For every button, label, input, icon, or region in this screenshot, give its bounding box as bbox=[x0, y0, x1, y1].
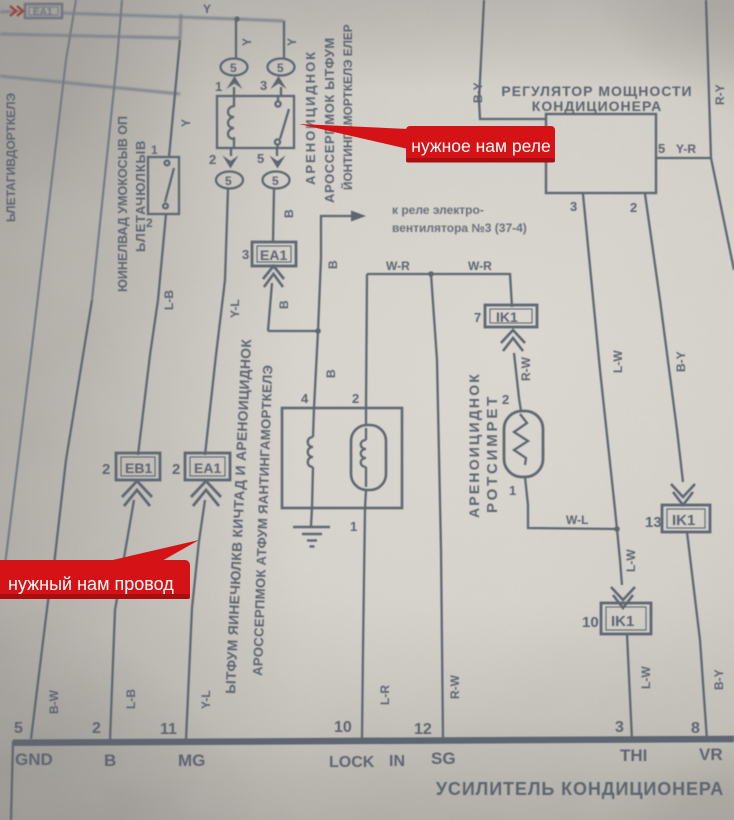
svg-text:5: 5 bbox=[230, 61, 237, 75]
svg-text:B: B bbox=[282, 209, 296, 218]
svg-text:8: 8 bbox=[691, 720, 700, 737]
svg-text:B-W: B-W bbox=[47, 689, 61, 714]
svg-text:B-Y: B-Y bbox=[712, 669, 726, 690]
svg-text:Y-L: Y-L bbox=[228, 299, 242, 318]
svg-text:W-R: W-R bbox=[468, 259, 492, 273]
svg-text:B: B bbox=[326, 260, 340, 269]
svg-text:L-B: L-B bbox=[124, 689, 138, 709]
svg-text:IK1: IK1 bbox=[496, 309, 518, 325]
svg-text:L-W: L-W bbox=[639, 666, 653, 689]
svg-text:2: 2 bbox=[209, 152, 216, 167]
svg-text:Y: Y bbox=[240, 38, 254, 46]
svg-text:РЕГУЛЯТОР МОЩНОСТИ: РЕГУЛЯТОР МОЩНОСТИ bbox=[501, 83, 692, 99]
svg-text:5: 5 bbox=[257, 151, 264, 166]
svg-text:IK1: IK1 bbox=[611, 613, 634, 630]
svg-text:1: 1 bbox=[509, 483, 516, 498]
svg-text:B: B bbox=[324, 369, 338, 378]
svg-text:5: 5 bbox=[14, 720, 23, 737]
svg-text:1: 1 bbox=[215, 79, 222, 94]
svg-text:MG: MG bbox=[178, 751, 205, 770]
svg-text:2: 2 bbox=[630, 200, 637, 215]
svg-text:10: 10 bbox=[334, 719, 352, 736]
svg-text:R-W: R-W bbox=[519, 356, 533, 381]
svg-text:Y: Y bbox=[285, 38, 299, 46]
svg-text:11: 11 bbox=[160, 721, 177, 738]
svg-text:B: B bbox=[104, 751, 116, 770]
svg-text:3: 3 bbox=[242, 247, 249, 262]
svg-text:2: 2 bbox=[352, 391, 359, 406]
svg-text:3: 3 bbox=[260, 78, 267, 93]
svg-text:B-Y: B-Y bbox=[674, 351, 688, 372]
svg-text:5: 5 bbox=[277, 61, 284, 75]
svg-text:1: 1 bbox=[151, 143, 158, 157]
svg-text:W-L: W-L bbox=[566, 513, 588, 527]
svg-text:EB1: EB1 bbox=[125, 460, 152, 476]
svg-text:5: 5 bbox=[272, 174, 279, 188]
svg-text:EA1: EA1 bbox=[33, 7, 53, 18]
svg-text:2: 2 bbox=[92, 720, 101, 737]
svg-text:РОТСИМРЕТ: РОТСИМРЕТ bbox=[484, 394, 501, 513]
svg-text:R-Y: R-Y bbox=[713, 84, 727, 105]
svg-text:5: 5 bbox=[225, 174, 232, 188]
svg-text:IN: IN bbox=[389, 753, 405, 770]
svg-text:нужное нам реле: нужное нам реле bbox=[411, 136, 550, 156]
svg-text:УСИЛИТЕЛЬ КОНДИЦИОНЕРА: УСИЛИТЕЛЬ КОНДИЦИОНЕРА bbox=[436, 779, 724, 799]
svg-text:2: 2 bbox=[172, 461, 180, 478]
svg-text:5: 5 bbox=[658, 141, 665, 156]
svg-text:12: 12 bbox=[414, 721, 432, 738]
svg-text:ЬЛЕТАЧЮЛКЫВ: ЬЛЕТАЧЮЛКЫВ bbox=[133, 140, 148, 252]
svg-text:EA1: EA1 bbox=[194, 460, 221, 476]
svg-text:L-B: L-B bbox=[162, 290, 176, 310]
svg-text:ЬЛЕТАГИВДОРТКЕЛЭ: ЬЛЕТАГИВДОРТКЕЛЭ bbox=[4, 92, 18, 222]
svg-text:Y-R: Y-R bbox=[676, 142, 696, 156]
svg-text:GND: GND bbox=[15, 750, 53, 769]
svg-text:Y-L: Y-L bbox=[199, 690, 213, 709]
svg-text:R-W: R-W bbox=[448, 674, 462, 699]
svg-text:Y: Y bbox=[179, 119, 193, 127]
svg-text:АРЕНОИЦИДНОК: АРЕНОИЦИДНОК bbox=[466, 372, 482, 518]
svg-text:13: 13 bbox=[645, 514, 662, 531]
svg-text:АРОССЕРПМОК ЫТФУМ: АРОССЕРПМОК ЫТФУМ bbox=[322, 37, 337, 203]
svg-text:КОНДИЦИОНЕРА: КОНДИЦИОНЕРА bbox=[532, 98, 662, 114]
svg-text:3: 3 bbox=[615, 719, 624, 736]
svg-text:B: B bbox=[277, 300, 291, 309]
svg-text:к реле электро-: к реле электро- bbox=[392, 203, 484, 217]
svg-text:L-W: L-W bbox=[624, 549, 638, 572]
svg-text:THI: THI bbox=[620, 746, 647, 765]
svg-text:10: 10 bbox=[582, 614, 599, 631]
svg-text:LOCK: LOCK bbox=[329, 754, 375, 771]
svg-text:7: 7 bbox=[474, 310, 481, 325]
svg-text:2: 2 bbox=[502, 392, 509, 407]
svg-text:B-Y: B-Y bbox=[471, 82, 485, 103]
svg-text:ЙОНТИНГАМОРТКЕЛЭ ЕЛЕР: ЙОНТИНГАМОРТКЕЛЭ ЕЛЕР bbox=[341, 24, 355, 190]
svg-text:3: 3 bbox=[570, 199, 577, 214]
svg-text:VR: VR bbox=[699, 745, 723, 764]
svg-text:вентилятора №3 (37-4): вентилятора №3 (37-4) bbox=[392, 221, 527, 235]
svg-text:нужный нам провод: нужный нам провод bbox=[8, 574, 174, 594]
svg-text:IK1: IK1 bbox=[672, 512, 695, 529]
svg-text:ЮИНЕЛВАД УМОКОСЫВ ОП: ЮИНЕЛВАД УМОКОСЫВ ОП bbox=[116, 116, 130, 292]
svg-text:EA1: EA1 bbox=[260, 247, 287, 263]
svg-text:Y: Y bbox=[203, 2, 211, 16]
svg-text:W-R: W-R bbox=[386, 259, 410, 273]
svg-text:2: 2 bbox=[102, 461, 110, 478]
svg-text:АРЕНОИЦИДНОК: АРЕНОИЦИДНОК bbox=[303, 50, 318, 185]
svg-text:1: 1 bbox=[350, 519, 357, 534]
svg-text:L-R: L-R bbox=[378, 685, 392, 705]
svg-text:2: 2 bbox=[146, 216, 153, 230]
svg-text:4: 4 bbox=[301, 391, 309, 406]
svg-text:SG: SG bbox=[431, 749, 456, 768]
svg-text:L-W: L-W bbox=[611, 350, 625, 373]
